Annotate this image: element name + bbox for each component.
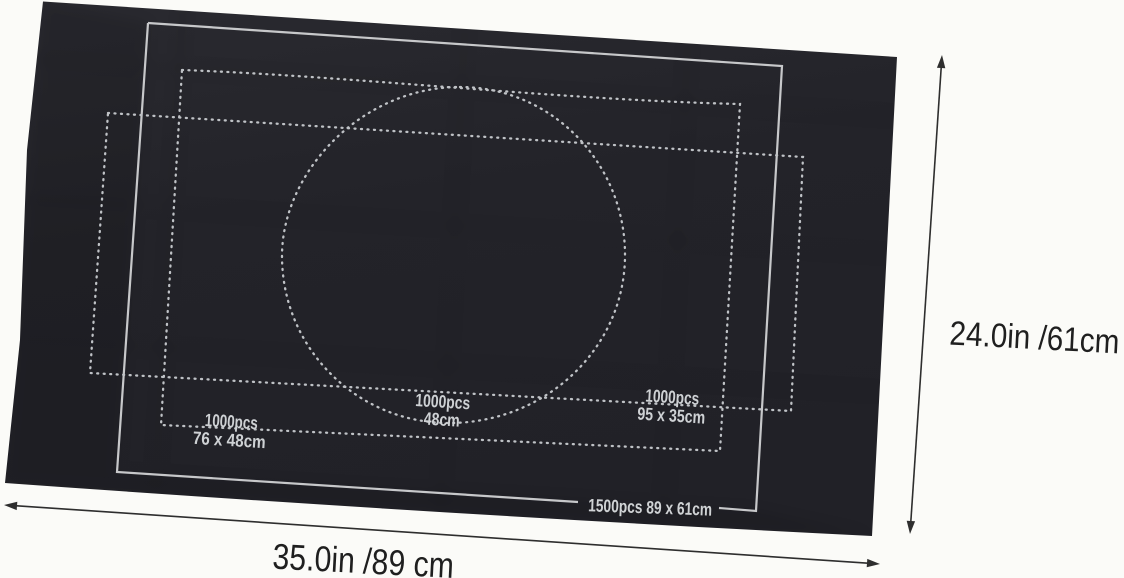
svg-text:95 x 35cm: 95 x 35cm	[637, 404, 706, 428]
svg-text:48cm: 48cm	[423, 409, 460, 431]
